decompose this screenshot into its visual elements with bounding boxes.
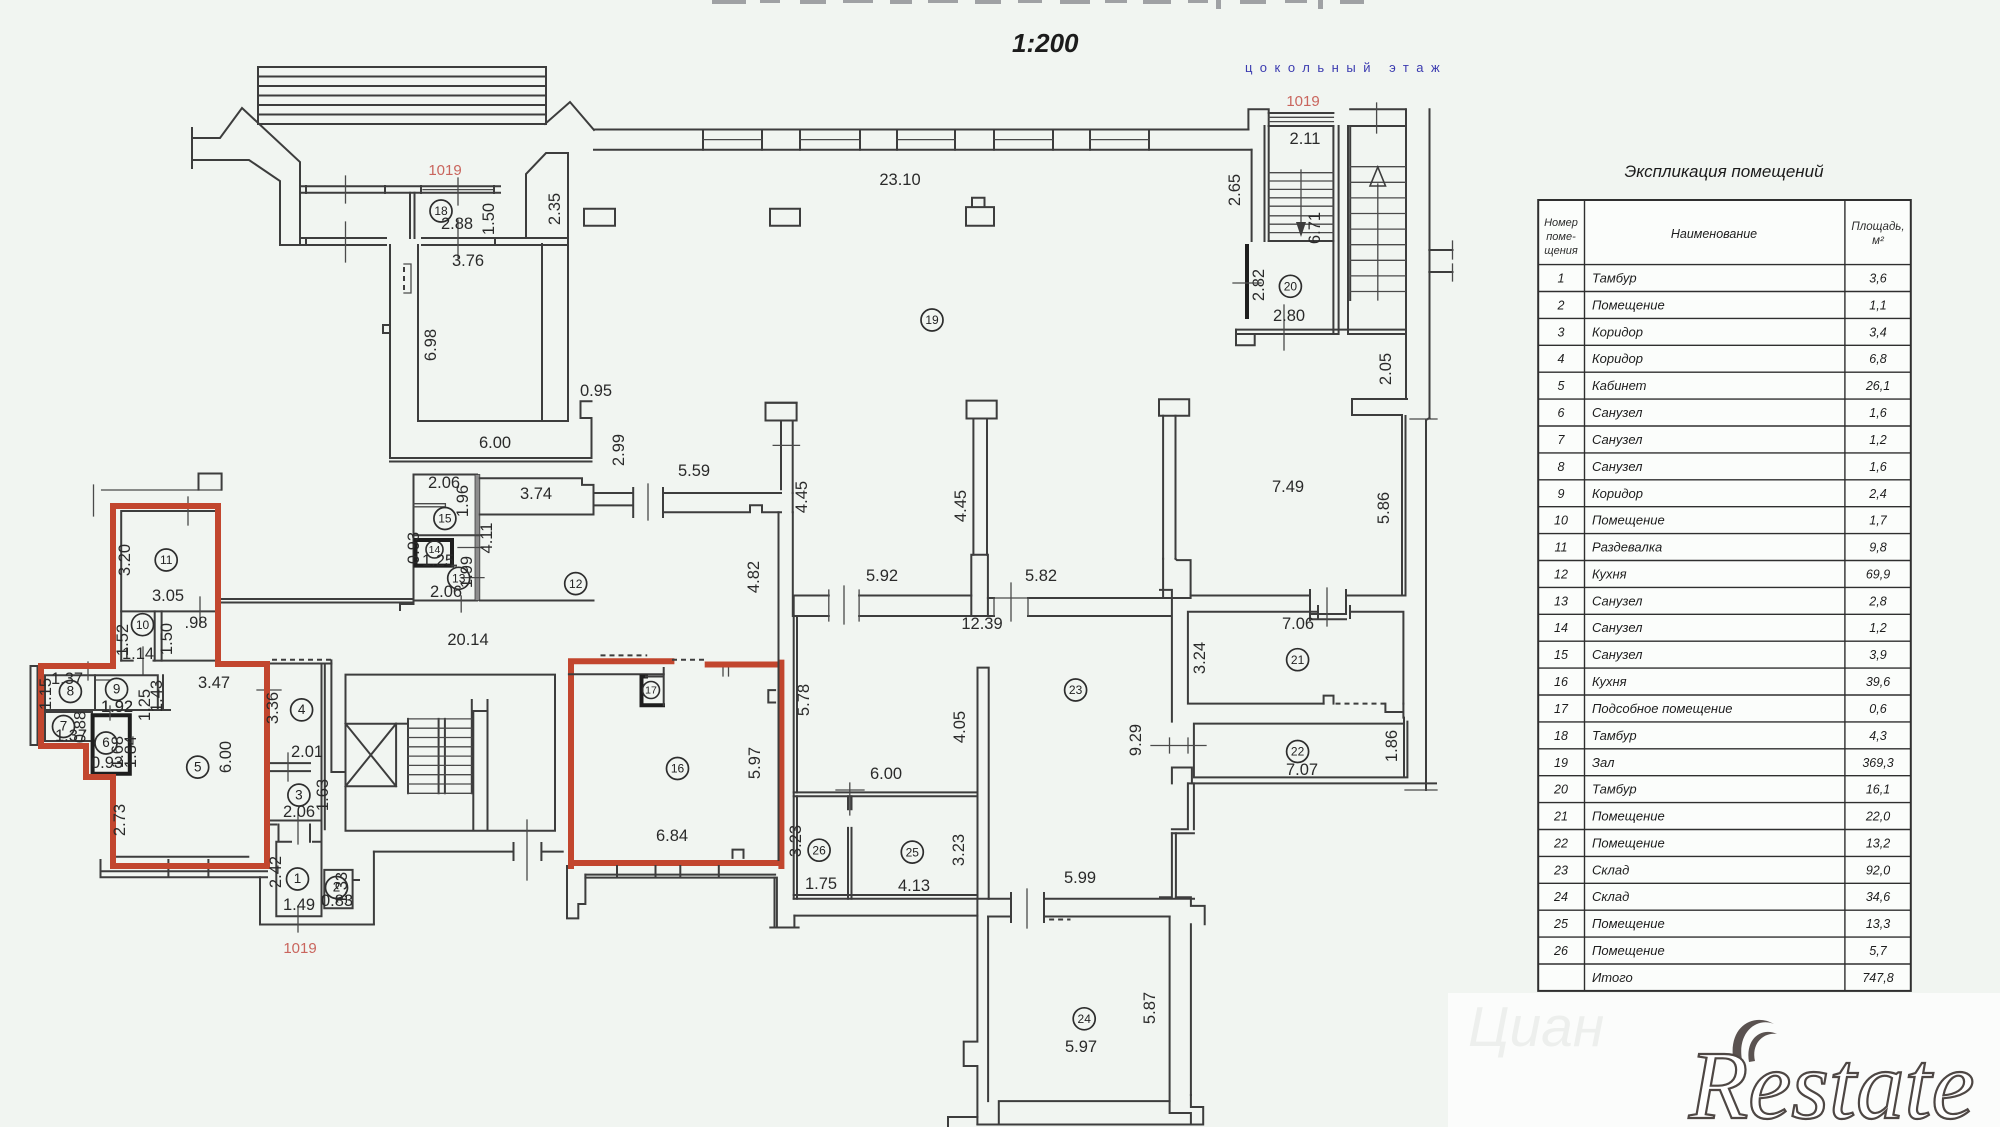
svg-text:Кухня: Кухня (1592, 567, 1627, 582)
svg-text:Коридор: Коридор (1592, 324, 1643, 339)
svg-text:5.97: 5.97 (746, 747, 764, 779)
svg-text:4.13: 4.13 (898, 877, 930, 895)
svg-text:69,9: 69,9 (1866, 568, 1890, 582)
svg-text:24: 24 (1078, 1012, 1092, 1026)
svg-text:Раздевалка: Раздевалка (1592, 540, 1662, 555)
svg-text:3,9: 3,9 (1869, 648, 1886, 662)
svg-text:39,6: 39,6 (1866, 675, 1890, 689)
svg-text:2.80: 2.80 (1273, 307, 1305, 325)
svg-text:1.96: 1.96 (454, 485, 472, 517)
svg-text:26: 26 (812, 843, 826, 857)
svg-text:9.29: 9.29 (1127, 724, 1145, 756)
svg-text:10: 10 (136, 618, 150, 632)
svg-text:369,3: 369,3 (1862, 756, 1893, 770)
svg-text:19: 19 (1554, 756, 1568, 770)
svg-text:Помещение: Помещение (1592, 836, 1665, 851)
svg-text:2.35: 2.35 (546, 193, 564, 225)
svg-text:1,6: 1,6 (1869, 406, 1886, 420)
svg-text:8: 8 (1558, 460, 1565, 474)
svg-text:3: 3 (295, 787, 303, 802)
svg-text:4.11: 4.11 (478, 523, 496, 554)
svg-text:22: 22 (1291, 745, 1305, 759)
svg-text:Помещение: Помещение (1592, 297, 1665, 312)
svg-text:3.23: 3.23 (787, 825, 805, 857)
svg-text:Санузел: Санузел (1592, 459, 1643, 474)
svg-text:6.71: 6.71 (1306, 212, 1324, 244)
svg-text:1,1: 1,1 (1869, 298, 1886, 312)
svg-text:7: 7 (1558, 433, 1566, 447)
svg-text:4: 4 (298, 702, 306, 717)
svg-text:2.01: 2.01 (291, 743, 323, 761)
svg-text:7.49: 7.49 (1272, 478, 1304, 496)
svg-text:9: 9 (1558, 487, 1565, 501)
svg-text:26: 26 (1553, 944, 1568, 958)
svg-text:2: 2 (1557, 298, 1565, 312)
svg-text:2.99: 2.99 (610, 434, 628, 466)
svg-text:25: 25 (1553, 917, 1568, 931)
svg-text:Санузел: Санузел (1592, 593, 1643, 608)
svg-text:Подсобное помещение: Подсобное помещение (1592, 701, 1733, 716)
svg-text:Склад: Склад (1592, 862, 1629, 877)
svg-text:Помещение: Помещение (1592, 513, 1665, 528)
svg-text:6.00: 6.00 (217, 741, 235, 773)
svg-text:щения: щения (1544, 245, 1578, 257)
svg-text:1.84: 1.84 (122, 736, 140, 768)
svg-text:1019: 1019 (428, 162, 461, 179)
svg-text:Коридор: Коридор (1592, 351, 1643, 366)
svg-text:5,7: 5,7 (1869, 944, 1887, 958)
svg-text:5.86: 5.86 (1375, 492, 1393, 524)
svg-text:Санузел: Санузел (1592, 405, 1643, 420)
svg-text:.98: .98 (185, 614, 208, 632)
svg-text:6.00: 6.00 (479, 434, 511, 452)
svg-text:5.92: 5.92 (866, 567, 898, 585)
svg-text:13,2: 13,2 (1866, 837, 1890, 851)
svg-text:2,8: 2,8 (1868, 594, 1886, 608)
svg-text:4: 4 (1558, 352, 1565, 366)
svg-text:6.84: 6.84 (656, 827, 688, 845)
svg-text:2: 2 (333, 880, 341, 895)
svg-text:м²: м² (1872, 235, 1885, 247)
svg-text:3.47: 3.47 (198, 674, 230, 692)
svg-text:Помещение: Помещение (1592, 916, 1665, 931)
svg-text:3.20: 3.20 (116, 544, 134, 576)
svg-text:0,6: 0,6 (1869, 702, 1886, 716)
svg-text:9,8: 9,8 (1869, 541, 1886, 555)
svg-text:14: 14 (1554, 621, 1568, 635)
svg-text:1,2: 1,2 (1869, 433, 1886, 447)
svg-text:17: 17 (1554, 702, 1569, 716)
svg-text:Итого: Итого (1592, 970, 1633, 985)
svg-text:Склад: Склад (1592, 889, 1629, 904)
svg-text:3: 3 (1558, 325, 1565, 339)
svg-text:1019: 1019 (1286, 93, 1319, 110)
svg-text:5.59: 5.59 (678, 462, 710, 480)
svg-text:2.73: 2.73 (111, 804, 129, 836)
svg-text:2.82: 2.82 (1250, 269, 1268, 301)
svg-text:747,8: 747,8 (1862, 971, 1893, 985)
svg-text:2.42: 2.42 (267, 856, 285, 888)
svg-text:8: 8 (67, 684, 75, 699)
svg-text:поме-: поме- (1546, 231, 1576, 243)
svg-text:Номер: Номер (1544, 217, 1578, 229)
svg-text:12: 12 (1554, 568, 1568, 582)
svg-text:15: 15 (438, 512, 452, 526)
svg-text:Тамбур: Тамбур (1592, 728, 1637, 743)
svg-text:4.45: 4.45 (793, 481, 811, 513)
svg-text:3.24: 3.24 (1191, 642, 1209, 674)
svg-text:Restate: Restate (1688, 1032, 1975, 1127)
svg-text:23.10: 23.10 (879, 171, 920, 189)
svg-text:Наименование: Наименование (1671, 227, 1757, 241)
svg-text:Зал: Зал (1592, 755, 1615, 770)
svg-text:13: 13 (1554, 594, 1568, 608)
svg-text:92,0: 92,0 (1866, 863, 1890, 877)
svg-text:25: 25 (906, 845, 920, 859)
svg-text:1.49: 1.49 (283, 896, 315, 914)
svg-text:18: 18 (1554, 729, 1568, 743)
svg-text:Санузел: Санузел (1592, 647, 1643, 662)
svg-text:19: 19 (925, 313, 939, 327)
svg-text:5.82: 5.82 (1025, 567, 1057, 585)
svg-text:Коридор: Коридор (1592, 486, 1643, 501)
svg-text:13,3: 13,3 (1866, 917, 1890, 931)
svg-text:1.63: 1.63 (314, 779, 332, 811)
svg-text:16,1: 16,1 (1866, 783, 1890, 797)
svg-text:20.14: 20.14 (447, 631, 488, 649)
svg-text:3.23: 3.23 (950, 834, 968, 866)
svg-text:1: 1 (294, 871, 302, 886)
svg-text:13: 13 (452, 572, 466, 586)
svg-text:1:200: 1:200 (1012, 28, 1079, 58)
svg-text:26,1: 26,1 (1865, 379, 1890, 393)
svg-text:Площадь,: Площадь, (1851, 221, 1904, 233)
svg-text:Циан: Циан (1468, 995, 1604, 1059)
svg-text:3.74: 3.74 (520, 485, 552, 503)
svg-text:1,7: 1,7 (1869, 514, 1887, 528)
svg-text:5: 5 (194, 759, 202, 774)
svg-text:1.15: 1.15 (37, 678, 55, 710)
svg-text:Экспликация помещений: Экспликация помещений (1624, 162, 1824, 181)
svg-text:2.65: 2.65 (1226, 174, 1244, 206)
svg-text:22: 22 (1553, 837, 1568, 851)
svg-text:4.45: 4.45 (952, 490, 970, 522)
svg-text:11: 11 (1555, 541, 1568, 555)
svg-text:Кабинет: Кабинет (1592, 378, 1647, 393)
svg-text:6.00: 6.00 (870, 765, 902, 783)
svg-text:5.78: 5.78 (795, 684, 813, 716)
svg-text:34,6: 34,6 (1866, 890, 1890, 904)
svg-text:6,8: 6,8 (1869, 352, 1886, 366)
svg-text:4.82: 4.82 (745, 561, 763, 593)
svg-text:3,6: 3,6 (1869, 272, 1886, 286)
svg-text:2,4: 2,4 (1868, 487, 1886, 501)
svg-text:14: 14 (429, 544, 441, 556)
svg-text:Санузел: Санузел (1592, 432, 1643, 447)
svg-text:7: 7 (60, 719, 68, 734)
svg-text:7.07: 7.07 (1286, 761, 1318, 779)
svg-text:11: 11 (160, 553, 173, 567)
svg-text:5.99: 5.99 (1064, 869, 1096, 887)
svg-text:21: 21 (1291, 653, 1305, 667)
svg-text:1019: 1019 (283, 940, 316, 957)
svg-text:1.86: 1.86 (1383, 730, 1401, 762)
svg-text:1.50: 1.50 (480, 203, 498, 235)
svg-text:1,6: 1,6 (1869, 460, 1886, 474)
svg-text:17: 17 (645, 685, 657, 697)
svg-text:20: 20 (1553, 783, 1568, 797)
svg-text:3.36: 3.36 (264, 692, 282, 724)
svg-text:3.76: 3.76 (452, 252, 484, 270)
svg-text:5.87: 5.87 (1141, 992, 1159, 1024)
svg-text:4,3: 4,3 (1869, 729, 1886, 743)
svg-text:20: 20 (1284, 280, 1298, 294)
svg-text:10: 10 (1554, 514, 1568, 528)
svg-text:6: 6 (1558, 406, 1565, 420)
svg-text:5.97: 5.97 (1065, 1038, 1097, 1056)
svg-text:Тамбур: Тамбур (1592, 271, 1637, 286)
svg-text:1,2: 1,2 (1869, 621, 1886, 635)
svg-text:15: 15 (1554, 648, 1568, 662)
svg-text:4.05: 4.05 (951, 711, 969, 743)
svg-text:12: 12 (569, 577, 583, 591)
svg-text:12.39: 12.39 (961, 615, 1002, 633)
svg-text:2.05: 2.05 (1377, 353, 1395, 385)
svg-text:5: 5 (1558, 379, 1565, 393)
svg-text:Санузел: Санузел (1592, 620, 1643, 635)
svg-text:23: 23 (1069, 683, 1083, 697)
svg-text:9: 9 (113, 682, 121, 697)
svg-text:6.98: 6.98 (422, 329, 440, 361)
svg-text:Тамбур: Тамбур (1592, 782, 1637, 797)
svg-text:23: 23 (1553, 863, 1568, 877)
svg-text:7.06: 7.06 (1282, 615, 1314, 633)
svg-text:2.11: 2.11 (1290, 130, 1321, 148)
svg-text:1.75: 1.75 (805, 875, 837, 893)
svg-text:цокольный этаж: цокольный этаж (1245, 60, 1447, 75)
svg-text:0.93: 0.93 (405, 532, 423, 564)
svg-text:16: 16 (1554, 675, 1568, 689)
svg-text:1.52: 1.52 (114, 624, 132, 656)
svg-text:3.05: 3.05 (152, 587, 184, 605)
svg-text:Помещение: Помещение (1592, 943, 1665, 958)
svg-text:1.43: 1.43 (148, 680, 166, 712)
svg-text:21: 21 (1553, 810, 1568, 824)
svg-text:0.95: 0.95 (580, 382, 612, 400)
svg-text:24: 24 (1553, 890, 1568, 904)
svg-text:1.50: 1.50 (158, 623, 176, 655)
svg-text:3,4: 3,4 (1869, 325, 1886, 339)
svg-text:22,0: 22,0 (1865, 810, 1890, 824)
svg-text:18: 18 (434, 204, 448, 218)
svg-text:1: 1 (1558, 272, 1565, 286)
svg-text:Помещение: Помещение (1592, 809, 1665, 824)
svg-text:6: 6 (102, 735, 110, 750)
svg-text:16: 16 (671, 762, 685, 776)
svg-text:Кухня: Кухня (1592, 674, 1627, 689)
